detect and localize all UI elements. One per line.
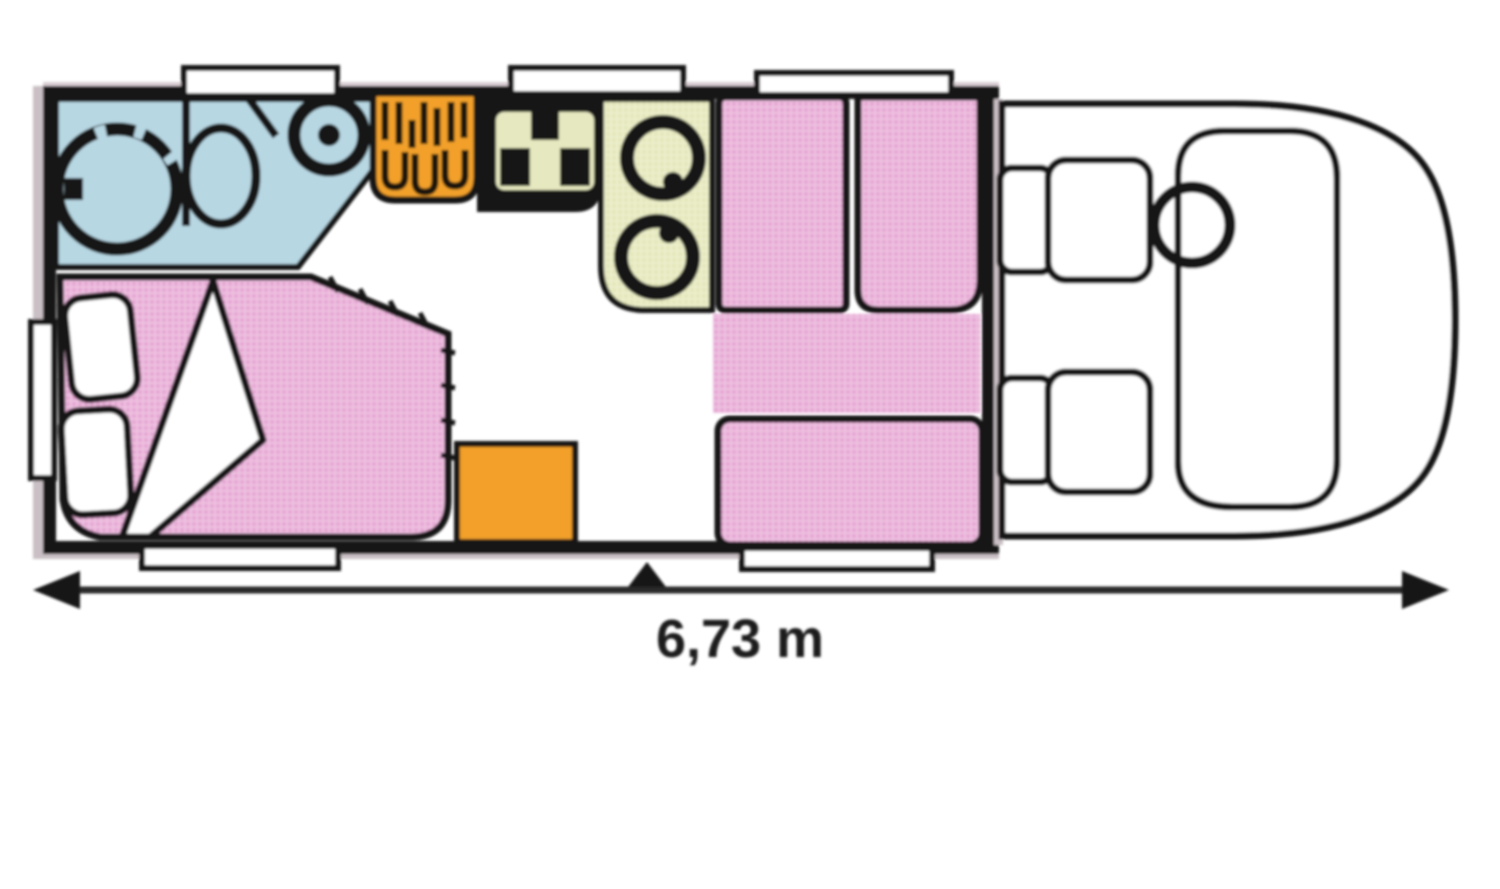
svg-text:6,73 m: 6,73 m (656, 609, 824, 669)
